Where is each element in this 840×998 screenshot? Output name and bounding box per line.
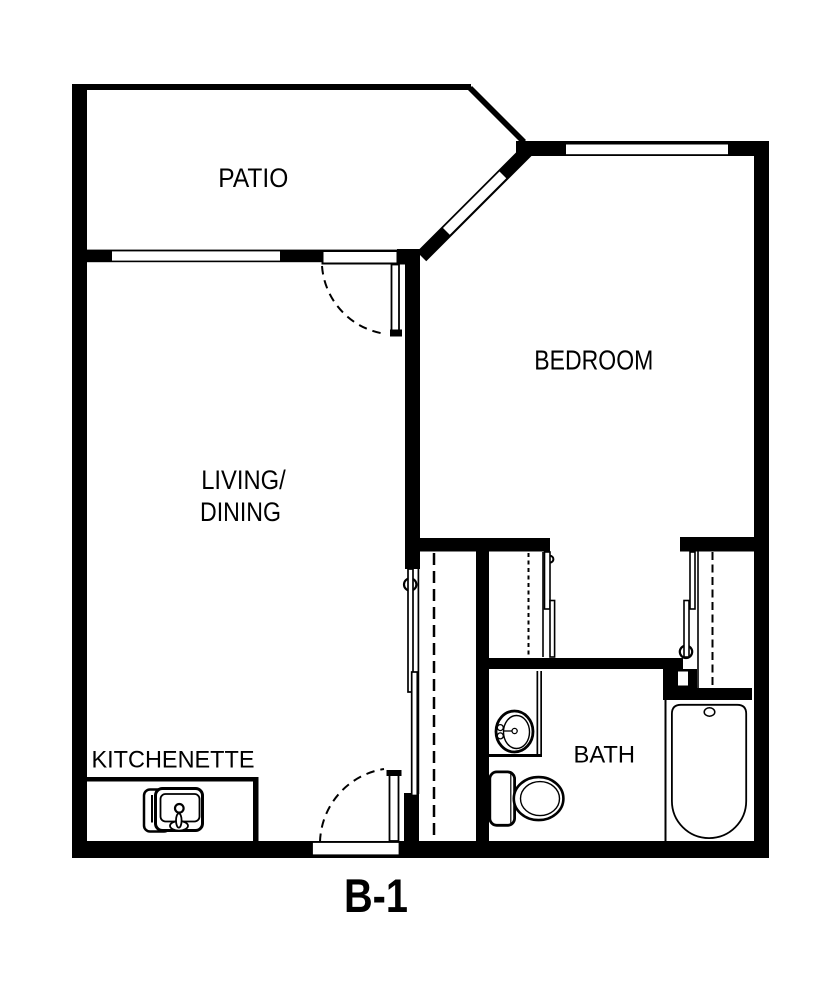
svg-text:LIVING/: LIVING/ bbox=[201, 465, 286, 495]
svg-text:PATIO: PATIO bbox=[218, 163, 288, 193]
svg-text:B-1: B-1 bbox=[344, 870, 408, 923]
svg-text:KITCHENETTE: KITCHENETTE bbox=[92, 746, 255, 773]
svg-text:BATH: BATH bbox=[574, 742, 636, 769]
svg-text:DINING: DINING bbox=[200, 497, 281, 527]
svg-text:BEDROOM: BEDROOM bbox=[534, 344, 653, 375]
